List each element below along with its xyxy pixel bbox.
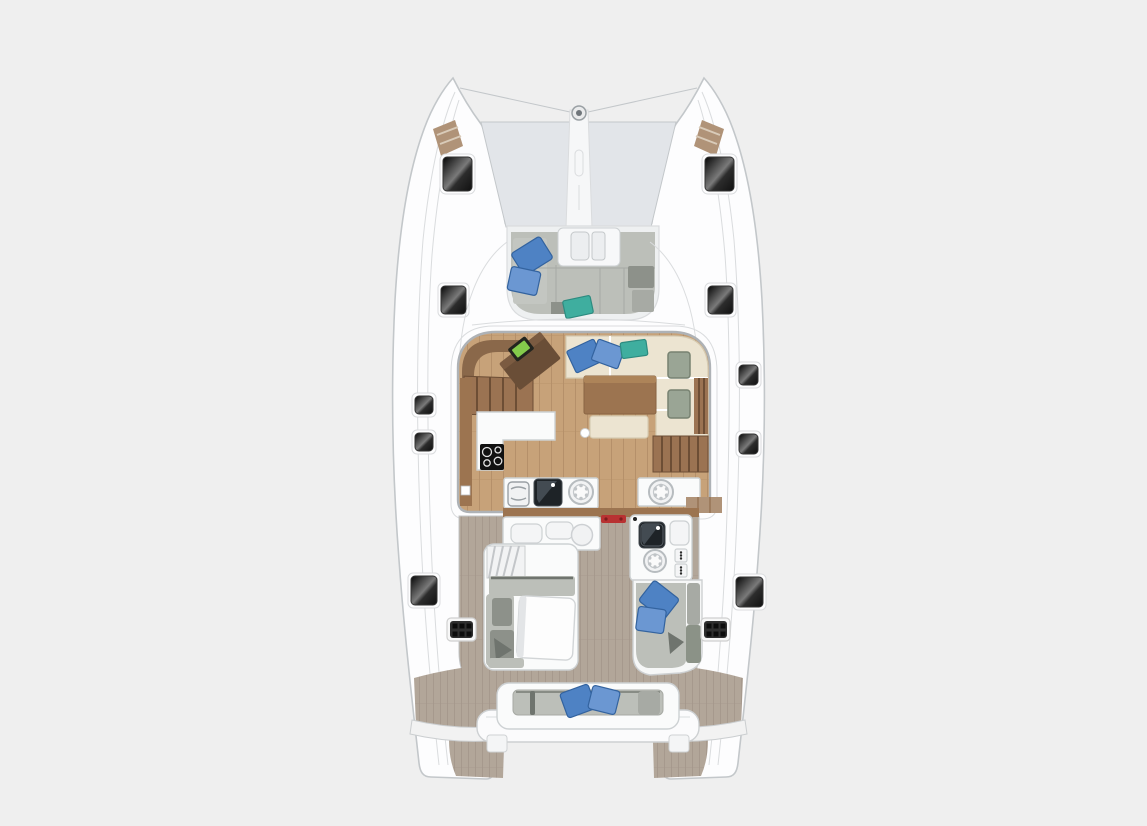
vent-icon [508,482,529,506]
davit-port [487,735,507,752]
starboard-seat-backrest [687,583,700,625]
foredeck-hatch-port-fwd [440,154,475,194]
headrest-1 [668,352,690,378]
starboard-pillow-blue-2 [635,606,666,634]
davit-starboard [669,735,689,752]
port-lounge-return [488,658,524,668]
deck-vent-starboard [701,618,730,641]
cockpit-table [516,596,575,661]
headrest-2 [668,390,690,418]
forward-corner-cushion [628,266,654,288]
table-leg-dot [581,429,590,438]
starboard-seat-backrest-low [686,625,701,663]
salon-aft-counter-port [504,478,598,508]
catamaran-floor-plan [0,0,1147,826]
foredeck-hatch-starboard-aft [705,283,736,317]
foredeck-hatch-port-aft [438,283,469,317]
foredeck-hatch-starboard-fwd [702,154,737,194]
anchor-channel [566,110,592,228]
side-hatch-port-1 [412,393,436,417]
bowsprit-pin [576,110,582,116]
side-steps [487,546,525,578]
aft-bench-armrest [530,691,535,715]
windlass-hatch [558,228,620,266]
side-hatch-starboard-2 [736,431,761,457]
ottoman [590,416,648,438]
sliding-door-handle [601,515,626,523]
galley-sink [534,479,562,506]
side-hatch-port-2 [412,430,436,454]
round-hatch-starboard [649,480,673,504]
port-lounge-cushion-1 [492,598,512,626]
grill-burner [644,550,666,572]
side-hatch-starboard-aft [733,574,766,610]
side-hatch-starboard-1 [736,362,761,388]
grill-module [630,515,692,581]
dining-table [584,376,656,414]
deck-vent-port [447,618,476,641]
aft-bench [497,683,679,729]
forward-cockpit [507,226,659,320]
forward-corner-cushion-2 [632,290,654,312]
salon [458,332,710,512]
salon-pillow-teal [620,339,648,358]
aft-bench-end-cushion [638,691,660,715]
starboard-stairs [653,436,708,472]
side-hatch-port-aft [408,573,440,608]
starboard-side-berth [694,378,708,434]
grill-sink [639,522,665,548]
port-lounge [484,544,578,670]
round-hatch-port [569,480,593,504]
starboard-seat [633,580,702,675]
port-side-socket [461,486,470,495]
wet-bar-sink [572,525,593,546]
grill-lid [670,521,689,545]
